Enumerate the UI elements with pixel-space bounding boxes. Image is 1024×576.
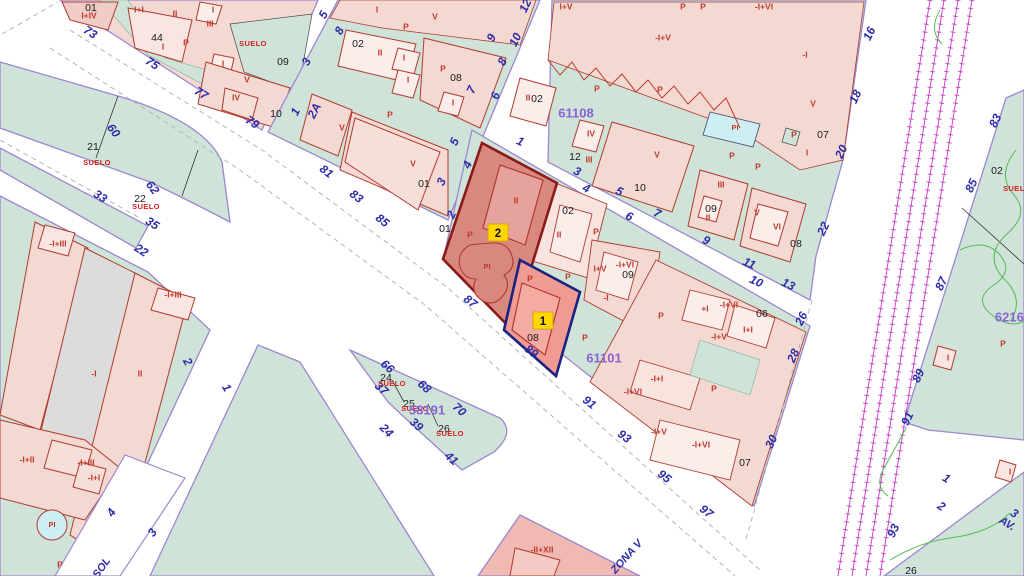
floor-count-label: IV [587,128,595,138]
parcel-number: 26 [905,565,917,576]
floor-count-label: I+V [560,1,573,11]
floor-count-label: -I+VI [720,299,738,309]
parcel-number: 07 [817,129,829,141]
floor-count-label: P [657,84,663,94]
floor-count-label: -I+V [651,426,667,436]
floor-count-label: -I [603,292,608,302]
map-canvas[interactable]: 7375777981838587899193959760623335222124… [0,0,1024,576]
block-number: 58191 [409,402,445,417]
floor-count-label: II [526,92,531,102]
suelo-label: SUELO [436,429,464,438]
floor-count-label: III [585,154,592,164]
floor-count-label: -I+V [711,331,727,341]
street-number: 83 [347,187,366,206]
floor-count-label: I [947,352,949,362]
parcel-number: 01 [439,223,451,235]
floor-count-label: V [754,207,760,217]
street-number: 6 [623,208,635,224]
floor-count-label: V [244,74,250,84]
floor-count-label: II [173,8,178,18]
floor-count-label: P [183,37,189,47]
floor-count-label: P [582,332,588,342]
floor-count-label: I+IV [81,10,97,20]
parcel-number: 07 [739,457,751,469]
parcel-number: 09 [622,269,634,281]
cadastral-map-view[interactable]: 7375777981838587899193959760623335222124… [0,0,1024,576]
floor-count-label: P [700,1,706,11]
selection-badge-2[interactable]: 2 [488,224,508,241]
block-number: 62160 [995,309,1024,324]
floor-count-label: -I+III [49,238,66,248]
street-number: 5 [316,8,332,21]
floor-count-label: P [729,150,735,160]
floor-count-label: I [376,4,378,14]
parcel-number: 02 [991,165,1003,177]
floor-count-label: P [593,226,599,236]
floor-count-label: -I+I [88,472,101,482]
floor-count-label: P [527,273,533,283]
suelo-label: SUELO [378,379,406,388]
street-number: 2 [934,498,948,514]
floor-count-label: III [206,18,213,28]
suelo-label: SUELO [83,158,111,167]
parcel-number: 10 [270,108,282,120]
floor-count-label: I+I [134,4,144,14]
floor-count-label: P [403,21,409,31]
parcel-number: 02 [352,38,364,50]
floor-count-label: P [1000,338,1006,348]
floor-count-label: I [407,74,409,84]
floor-count-label: V [810,98,816,108]
selection-badge-1[interactable]: 1 [533,312,553,329]
floor-count-label: VI [773,221,781,231]
floor-count-label: P [387,109,393,119]
parcel-number: 01 [418,178,430,190]
floor-count-label: I [403,52,405,62]
pool-label: PI [731,123,738,132]
floor-count-label: P [711,383,717,393]
floor-count-label: P [467,229,473,239]
selection-badge-number: 1 [540,316,547,328]
floor-count-label: III [717,179,724,189]
floor-count-label: P [440,63,446,73]
street-number: 97 [697,502,717,522]
floor-count-label: I [452,97,454,107]
parcel-number: 12 [569,151,581,163]
pool-label: PI [483,262,490,271]
floor-count-label: I [222,58,224,68]
street-number: 93 [884,521,902,539]
floor-count-label: IV [232,92,240,102]
floor-count-label: P [565,271,571,281]
parcel-number: 08 [527,332,539,344]
floor-count-label: +I [701,303,708,313]
floor-count-label: V [339,122,345,132]
floor-count-label: -I [91,368,96,378]
floor-count-label: V [654,149,660,159]
floor-count-label: P [791,129,797,139]
parcel-number: 21 [87,141,99,153]
parcel-number: 08 [450,72,462,84]
floor-count-label: P [680,1,686,11]
floor-count-label: -I+VI [616,259,634,269]
block-number: 61101 [586,350,621,365]
floor-count-label: -I+V [655,32,671,42]
parcel-number: 02 [562,205,574,217]
floor-count-label: II [138,368,143,378]
floor-count-label: -I+III [164,289,181,299]
selection-badge-number: 2 [495,228,501,240]
floor-count-label: I+V [594,263,607,273]
floor-count-label: -I [802,49,807,59]
small-building-av [995,460,1016,482]
floor-count-label: P [755,161,761,171]
block-number: 61108 [558,105,593,120]
street-number: 16 [860,24,878,42]
floor-count-label: I [1009,466,1011,476]
floor-count-label: V [410,158,416,168]
parcel-number: 02 [531,93,543,105]
floor-count-label: II [378,47,383,57]
floor-count-label: -II+XII [531,544,554,554]
street-number: 1 [514,133,526,149]
parcel-number: 09 [277,56,289,68]
floor-count-label: -I+VI [692,439,710,449]
street-number: 1 [219,381,235,394]
floor-count-label: II [706,212,711,222]
floor-count-label: II [557,229,562,239]
floor-count-label: -I+III [77,457,94,467]
floor-count-label: I+I [743,324,753,334]
parcel-number: 06 [756,308,768,320]
suelo-label: SUELO [239,39,267,48]
floor-count-label: V [432,11,438,21]
street-number: 85 [373,211,392,230]
suelo-label: SUELO [1003,184,1024,193]
street-number: 24 [376,420,396,440]
street-number: 93 [615,427,634,446]
street-number: 1 [940,471,953,487]
floor-count-label: I [212,4,214,14]
parcel-number: 10 [634,182,646,194]
floor-count-label: P [594,83,600,93]
floor-count-label: P [658,310,664,320]
floor-count-label: I [162,41,164,51]
suelo-label: SUELO [132,202,160,211]
floor-count-label: -I+I [651,373,664,383]
floor-count-label: II [514,195,519,205]
floor-count-label: -I+VI [755,1,773,11]
street-number: 95 [655,467,674,486]
floor-count-label: P [57,559,63,569]
floor-count-label: I [806,147,808,157]
floor-count-label: -I+VI [624,386,642,396]
pool-label: PI [48,520,55,529]
parcel-number: 08 [790,238,802,250]
floor-count-label: -I+II [20,454,35,464]
